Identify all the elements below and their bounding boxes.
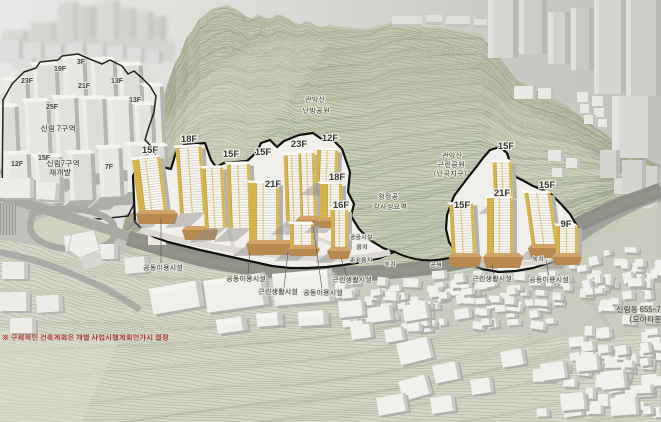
svg-text:21F: 21F — [78, 83, 91, 90]
svg-text:13F: 13F — [111, 78, 124, 85]
svg-text:12F: 12F — [322, 133, 339, 144]
svg-text:9F: 9F — [560, 219, 571, 230]
svg-text:3F: 3F — [77, 59, 86, 66]
svg-text:13F: 13F — [129, 97, 142, 104]
svg-text:15F: 15F — [142, 145, 159, 156]
svg-text:7F: 7F — [105, 164, 114, 171]
svg-text:25F: 25F — [46, 104, 59, 111]
svg-text:15F: 15F — [539, 180, 556, 191]
svg-text:21F: 21F — [265, 179, 282, 190]
svg-text:15F: 15F — [223, 149, 240, 160]
svg-text:12F: 12F — [11, 161, 24, 168]
svg-text:15F: 15F — [498, 141, 515, 152]
svg-text:18F: 18F — [181, 134, 198, 145]
svg-text:23F: 23F — [291, 139, 308, 150]
svg-text:23F: 23F — [21, 78, 34, 85]
svg-text:21F: 21F — [494, 188, 511, 199]
svg-text:15F: 15F — [255, 147, 272, 158]
svg-text:16F: 16F — [333, 200, 350, 211]
svg-text:18F: 18F — [329, 172, 346, 183]
svg-text:15F: 15F — [454, 200, 471, 211]
svg-text:19F: 19F — [54, 66, 67, 73]
